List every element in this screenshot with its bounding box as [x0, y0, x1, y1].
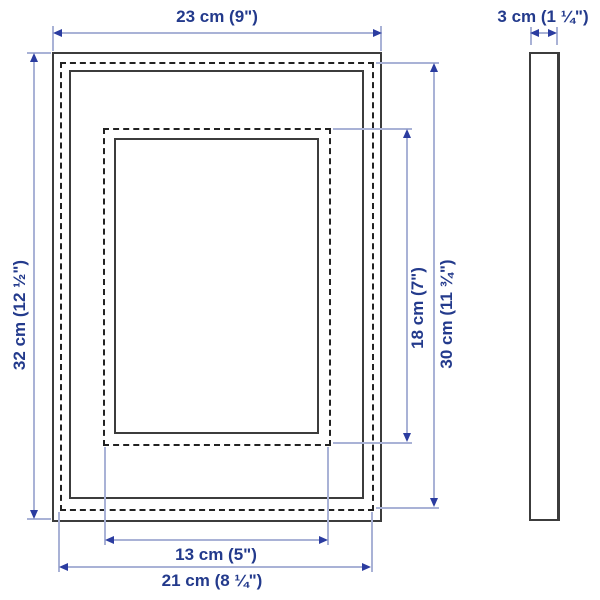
extension-line	[327, 447, 329, 545]
dimension-line	[433, 65, 435, 505]
opening-height-label: 18 cm (7")	[408, 267, 428, 349]
picture-width-label: 21 cm (8 ¼")	[162, 571, 263, 591]
opening-width-label: 13 cm (5")	[175, 545, 257, 565]
arrow-up-icon	[403, 129, 411, 138]
dimension-line	[61, 566, 369, 568]
frame-height-label: 32 cm (12 ½")	[10, 260, 30, 370]
arrow-right-icon	[373, 29, 382, 37]
depth-label: 3 cm (1 ¼")	[497, 7, 588, 27]
side-profile-view	[529, 52, 560, 521]
extension-line	[376, 507, 439, 509]
frame-width-label: 23 cm (9")	[176, 7, 258, 27]
picture-height-label: 30 cm (11 ¾")	[437, 259, 457, 368]
arrow-left-icon	[53, 29, 62, 37]
dimension-line	[55, 32, 380, 34]
arrow-left-icon	[530, 29, 539, 37]
arrow-right-icon	[548, 29, 557, 37]
extension-line	[333, 442, 412, 444]
arrow-right-icon	[362, 563, 371, 571]
arrow-down-icon	[30, 510, 38, 519]
extension-line	[371, 512, 373, 572]
extension-line	[104, 447, 106, 545]
dimension-line	[107, 539, 326, 541]
dimension-line	[532, 32, 555, 34]
mat-opening-inner-edge	[114, 138, 319, 434]
arrow-down-icon	[430, 498, 438, 507]
arrow-right-icon	[319, 536, 328, 544]
frame-dimension-diagram: 23 cm (9") 32 cm (12 ½") 18 cm (7") 30 c…	[0, 0, 600, 600]
arrow-down-icon	[403, 433, 411, 442]
arrow-left-icon	[59, 563, 68, 571]
dimension-line	[33, 55, 35, 517]
arrow-left-icon	[105, 536, 114, 544]
arrow-up-icon	[430, 63, 438, 72]
arrow-up-icon	[30, 53, 38, 62]
extension-line	[333, 128, 412, 130]
